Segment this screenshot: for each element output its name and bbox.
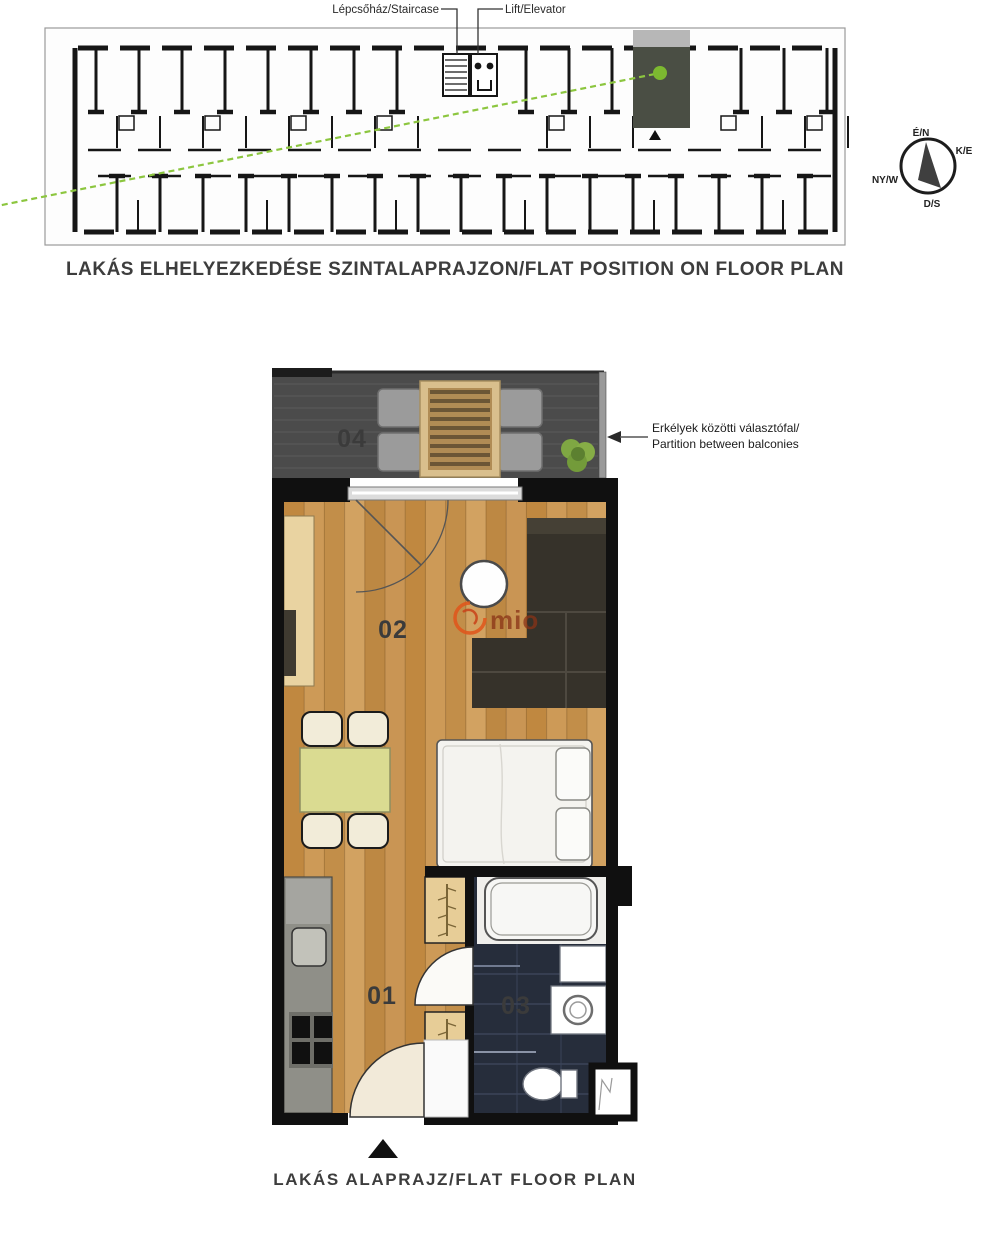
pillow	[556, 808, 590, 860]
bath-shelf	[560, 946, 606, 982]
wall-pillar	[606, 866, 632, 906]
partition-note-line2: Partition between balconies	[652, 437, 799, 451]
washbasin	[551, 986, 606, 1034]
elevator-icon	[471, 54, 497, 96]
floor-plan-page: Lépcsőház/Staircase Lift/Elevator É/N K/…	[0, 0, 1000, 1245]
compass-west-label: NY/W	[872, 175, 899, 186]
pillow	[556, 748, 590, 800]
compass-rose: É/N K/E NY/W D/S	[872, 126, 973, 210]
elevator-label: Lift/Elevator	[505, 4, 566, 16]
room-label-03: 03	[501, 992, 531, 1020]
balcony-room: 04	[272, 368, 606, 478]
staircase-label: Lépcsőház/Staircase	[332, 4, 439, 16]
flat-floor-plan: 04 Erkélyek közötti választófal/ Partiti…	[272, 368, 800, 1189]
compass-north-label: É/N	[913, 126, 930, 139]
wardrobe-left	[284, 516, 314, 686]
highlighted-unit-balcony	[633, 30, 690, 47]
stove	[289, 1012, 333, 1068]
dining-table	[300, 748, 390, 812]
entry-mat	[424, 1040, 468, 1117]
entrance-triangle-icon	[368, 1139, 398, 1158]
flat-plan-caption: LAKÁS ALAPRAJZ/FLAT FLOOR PLAN	[273, 1170, 636, 1189]
kitchen-sink	[292, 928, 326, 966]
round-table	[461, 561, 507, 607]
floor-plan-drawing: Lépcsőház/Staircase Lift/Elevator É/N K/…	[0, 0, 1000, 1245]
balcony-dimension-ticks	[272, 368, 332, 377]
partition-note-line1: Erkélyek közötti választófal/	[652, 421, 800, 435]
flat-position-dot	[653, 66, 667, 80]
kitchen-counter	[284, 877, 333, 1113]
compass-east-label: K/E	[956, 146, 973, 157]
room-label-01: 01	[367, 982, 397, 1010]
staircase-icon	[443, 54, 469, 96]
watermark-text: mio	[490, 605, 539, 635]
balcony-table	[420, 381, 500, 477]
room-label-02: 02	[378, 616, 408, 644]
bathroom: 03	[473, 874, 606, 1113]
shaft	[592, 1066, 634, 1118]
balcony-partition-wall	[599, 372, 606, 478]
bathtub	[485, 878, 597, 940]
room-label-04: 04	[337, 425, 367, 453]
bed	[437, 740, 592, 868]
arrow-left-icon	[607, 431, 621, 443]
compass-south-label: D/S	[924, 199, 941, 210]
building-floor-plan: Lépcsőház/Staircase Lift/Elevator É/N K/…	[0, 4, 973, 280]
partition-annotation: Erkélyek közötti választófal/ Partition …	[607, 421, 800, 451]
site-plan-caption: LAKÁS ELHELYEZKEDÉSE SZINTALAPRAJZON/FLA…	[66, 258, 844, 280]
highlighted-unit	[633, 47, 690, 128]
toilet	[523, 1068, 577, 1100]
